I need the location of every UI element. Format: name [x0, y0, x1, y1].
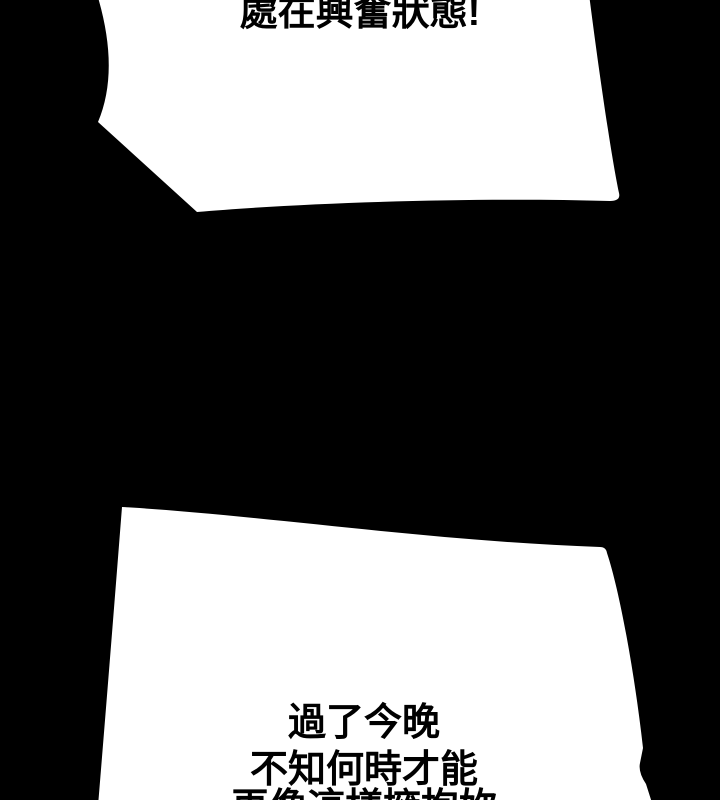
dialogue-bottom-line-2: 不知何時才能 [8, 750, 720, 790]
comic-panel: 處在興奮狀態! 過了今晚 不知何時才能 再像這樣擁抱妳 [0, 0, 720, 800]
dialogue-bottom-line-3-partially-cut-off: 再像這樣擁抱妳 [8, 788, 720, 800]
speech-bubble-layer [0, 0, 720, 800]
dialogue-top-bubble: 處在興奮狀態! [0, 0, 720, 34]
dialogue-bottom-line-1: 過了今晚 [8, 703, 720, 743]
